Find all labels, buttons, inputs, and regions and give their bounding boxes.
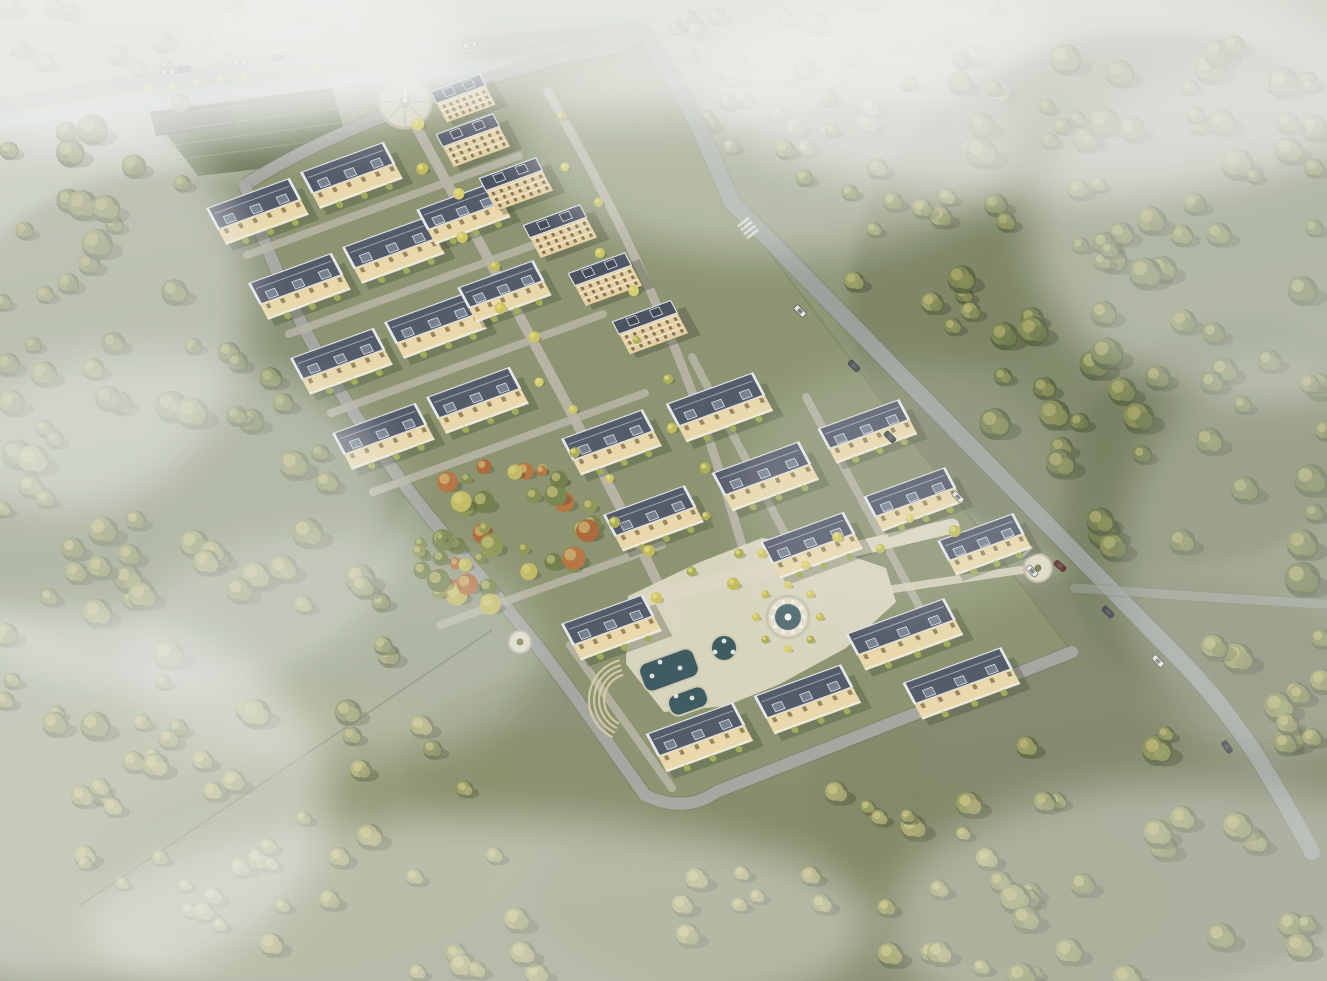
rendering-canvas	[0, 0, 1327, 981]
atmosphere-veil	[0, 0, 1327, 981]
aerial-site-rendering: Aerial bird's-eye rendering of a residen…	[0, 0, 1327, 981]
